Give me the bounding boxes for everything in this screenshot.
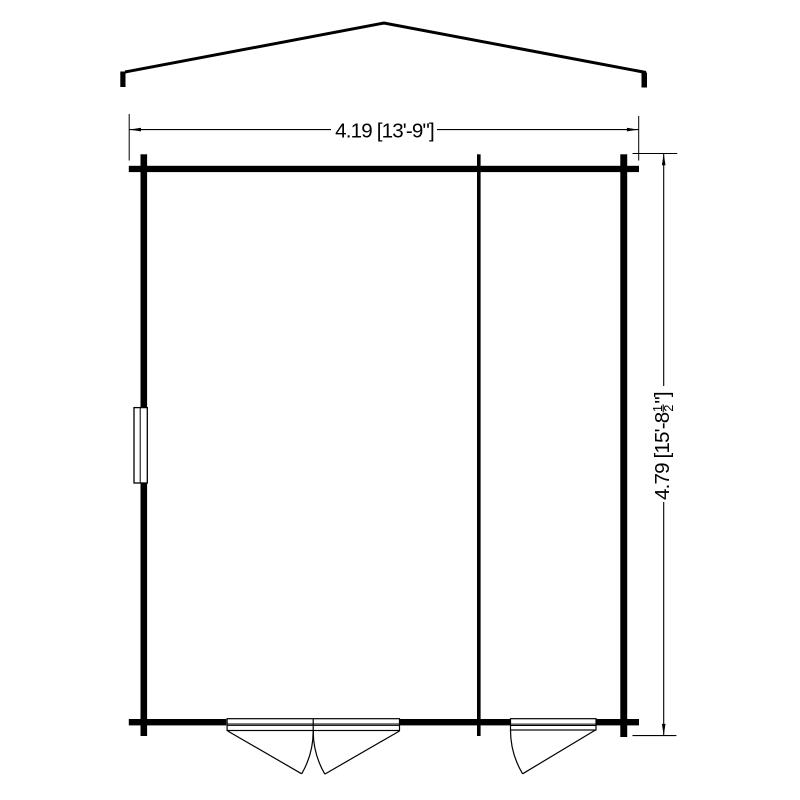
svg-text:"]: "] [651,392,674,403]
svg-text:4.79 [15'-8: 4.79 [15'-8 [651,412,674,500]
svg-text:4.19 [13'-9"]: 4.19 [13'-9"] [335,120,434,143]
svg-text:2: 2 [662,405,676,412]
